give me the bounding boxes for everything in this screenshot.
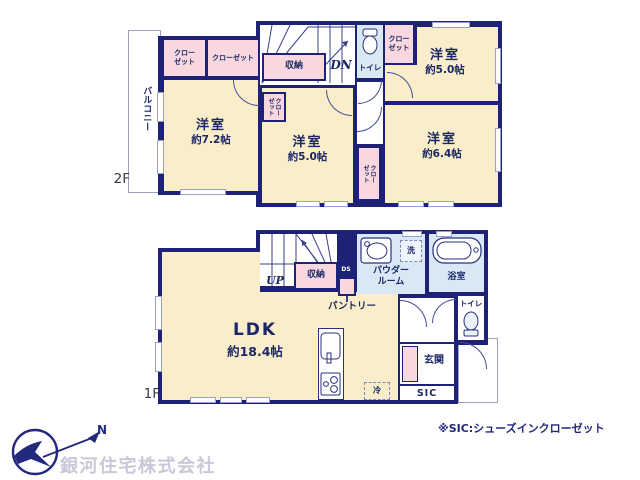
bathroom-label: 浴室	[429, 272, 484, 283]
bathtub-icon	[432, 237, 482, 264]
toilet-1f-icon	[462, 310, 480, 338]
closet-2f-mid-label: クローゼット	[362, 164, 376, 184]
window-2f-se-right	[495, 128, 501, 172]
closet-2f-center-label: クローゼット	[267, 97, 281, 117]
window-2f-balcony-b	[157, 140, 164, 174]
closet-2f-center: クローゼット	[262, 92, 286, 122]
stairs-1f-up: UP	[260, 274, 290, 288]
window-2f-ne-right	[495, 48, 501, 84]
duct-space-label: DS	[341, 266, 350, 273]
room-2f-center-label: 洋室 約5.0帖	[262, 135, 353, 164]
sic-label: SIC	[400, 388, 454, 400]
closet-2f-nw-a: クローゼット	[164, 40, 205, 76]
window-2f-center-bottom-a	[296, 201, 320, 207]
storage-1f-label: 収納	[307, 270, 325, 281]
floorplan-canvas: バルコニー クローゼット クローゼット 洋室 約7.2帖 収納 DN トイレ	[0, 0, 640, 480]
window-1f-bottom-b	[220, 397, 242, 403]
window-1f-left-a	[155, 296, 162, 330]
company-name: 銀河住宅株式会社	[60, 452, 216, 478]
window-1f-bath-top	[436, 231, 452, 237]
pantry-box	[338, 277, 356, 296]
window-2f-balcony-a	[157, 92, 164, 122]
laundry-label: 洗	[407, 246, 415, 256]
window-2f-center-bottom-b	[324, 201, 348, 207]
room-2f-ne-name: 洋室	[400, 48, 490, 64]
room-2f-se-label: 洋室 約6.4帖	[392, 132, 492, 161]
window-1f-left-b	[155, 342, 162, 372]
laundry-space: 洗	[400, 240, 422, 262]
window-2f-se-bottom-a	[398, 201, 424, 207]
washbasin-icon	[360, 237, 392, 264]
room-2f-ne-label: 洋室 約5.0帖	[400, 48, 490, 77]
storage-2f-label: 収納	[285, 61, 303, 72]
room-2f-se-size: 約6.4帖	[392, 148, 492, 161]
toilet-1f-label: トイレ	[456, 299, 486, 308]
room-2f-center-name: 洋室	[262, 135, 353, 151]
ldk-name: LDK	[195, 320, 315, 341]
sic-note: ※SIC:シューズインクローゼット	[438, 420, 605, 436]
room-2f-center-size: 約5.0帖	[262, 151, 353, 164]
ldk-label: LDK 約18.4帖	[195, 320, 315, 360]
closet-2f-mid: クローゼット	[357, 146, 381, 201]
duct-space: DS	[338, 262, 354, 276]
balcony-label: バルコニー	[140, 86, 151, 131]
window-2f-se-bottom-b	[428, 201, 454, 207]
room-2f-nw-label: 洋室 約7.2帖	[166, 118, 256, 147]
floor-1f-label: 1F	[134, 386, 160, 402]
toilet-2f-label: トイレ	[357, 63, 383, 72]
storage-2f: 収納	[262, 53, 326, 81]
room-2f-nw-name: 洋室	[166, 118, 256, 134]
floor-2f-label: 2F	[104, 171, 130, 187]
kitchen-sink-stove-icon	[319, 329, 342, 398]
closet-2f-nw-b-label: クローゼット	[212, 54, 254, 63]
entrance-label: 玄関	[414, 355, 454, 368]
compass-north-label: N	[97, 423, 107, 437]
window-1f-bottom-c	[246, 397, 270, 403]
room-2f-ne-size: 約5.0帖	[400, 64, 490, 77]
window-1f-bottom-a	[190, 397, 216, 403]
room-2f-se-name: 洋室	[392, 132, 492, 148]
pantry-label: パントリー	[326, 301, 378, 313]
window-2f-nw-bottom	[180, 189, 226, 195]
closet-2f-nw-a-label: クローゼット	[173, 49, 197, 67]
ldk-size: 約18.4帖	[195, 344, 315, 360]
storage-1f: 収納	[294, 262, 338, 290]
room-2f-nw-size: 約7.2帖	[166, 134, 256, 147]
fridge-label: 冷	[373, 386, 381, 396]
fridge-space: 冷	[364, 382, 390, 400]
window-2f-ne-top	[432, 22, 470, 28]
stairs-2f-dn: DN	[326, 58, 356, 73]
kitchen-counter	[318, 328, 344, 400]
toilet-2f: トイレ	[357, 25, 383, 78]
powder-room-label: パウダールーム	[369, 266, 413, 289]
window-1f-powder-top	[402, 231, 422, 237]
closet-2f-nw-b: クローゼット	[208, 40, 258, 76]
